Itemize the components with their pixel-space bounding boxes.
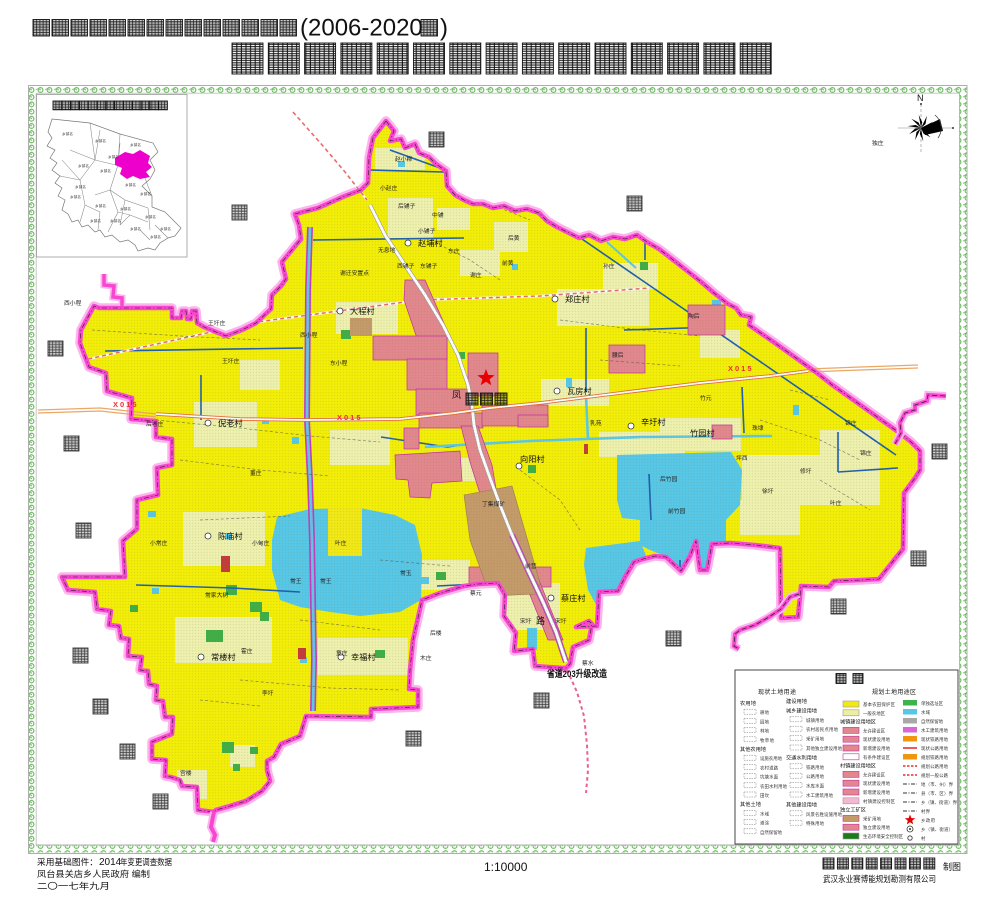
svg-text:乡镇名: 乡镇名	[150, 234, 161, 239]
svg-text:村: 村	[921, 835, 926, 841]
svg-text:后老庄: 后老庄	[146, 420, 164, 428]
svg-text:现状建设用地: 现状建设用地	[863, 780, 891, 787]
svg-text:丁集煤矿: 丁集煤矿	[482, 500, 505, 508]
svg-text:农村居民点用地: 农村居民点用地	[806, 726, 839, 733]
svg-text:乡镇名: 乡镇名	[62, 131, 73, 136]
svg-text:前营: 前营	[525, 562, 537, 570]
svg-text:后黄: 后黄	[508, 234, 520, 242]
svg-text:乡镇名: 乡镇名	[100, 168, 111, 173]
svg-text:生态环境安全控制区: 生态环境安全控制区	[863, 833, 904, 840]
svg-text:修圩: 修圩	[800, 467, 812, 475]
svg-text:武汉永业赛博能规划勘测有限公司: 武汉永业赛博能规划勘测有限公司	[823, 874, 936, 884]
svg-text:后楼: 后楼	[430, 629, 442, 637]
svg-text:林地: 林地	[760, 728, 770, 735]
svg-text:坪西: 坪西	[736, 454, 748, 462]
svg-text:瓦房村: 瓦房村	[567, 386, 592, 396]
svg-text:木庄: 木庄	[420, 654, 432, 662]
svg-text:其他农用地: 其他农用地	[740, 745, 766, 753]
svg-text:蔡元: 蔡元	[470, 589, 482, 597]
svg-text:霍庄: 霍庄	[241, 647, 253, 655]
svg-text:路: 路	[536, 615, 545, 626]
svg-text:王圩庄: 王圩庄	[222, 357, 240, 365]
svg-text:乡镇名: 乡镇名	[95, 138, 106, 143]
svg-text:小常庄: 小常庄	[150, 539, 168, 547]
svg-text:小铺子: 小铺子	[418, 227, 436, 235]
svg-text:村镇建设控制区: 村镇建设控制区	[863, 798, 896, 805]
svg-text:东铺子: 东铺子	[420, 262, 438, 270]
svg-text:公路用地: 公路用地	[806, 773, 825, 780]
svg-text:幸福村: 幸福村	[351, 652, 376, 662]
svg-text:X015: X015	[728, 364, 754, 373]
svg-text:谢迁安置点: 谢迁安置点	[340, 269, 369, 277]
svg-text:村界: 村界	[921, 808, 931, 815]
svg-text:乡镇名: 乡镇名	[95, 203, 106, 208]
svg-text:农村道路: 农村道路	[760, 764, 779, 771]
svg-text:叶庄: 叶庄	[335, 539, 347, 547]
svg-text:园地: 园地	[760, 718, 770, 725]
svg-text:东庄: 东庄	[448, 247, 460, 255]
svg-text:水库水面: 水库水面	[806, 783, 825, 790]
svg-text:规划一般公路: 规划一般公路	[921, 772, 949, 779]
svg-text:其他独立建设用地: 其他独立建设用地	[806, 745, 843, 752]
svg-text:乡镇名: 乡镇名	[145, 214, 156, 219]
svg-text:坑塘水面: 坑塘水面	[760, 774, 779, 781]
svg-text:其他建设用地: 其他建设用地	[786, 800, 817, 808]
svg-text:后铺子: 后铺子	[398, 202, 416, 210]
svg-text:县（市、区）界: 县（市、区）界	[921, 790, 954, 797]
svg-text:倪老村: 倪老村	[218, 418, 243, 428]
svg-text:大程村: 大程村	[350, 306, 375, 316]
svg-text:省道203升级改造: 省道203升级改造	[546, 668, 607, 680]
svg-text:小甸庄: 小甸庄	[252, 539, 270, 547]
svg-text:N: N	[917, 93, 924, 103]
svg-text:蔡庄村: 蔡庄村	[561, 593, 586, 603]
svg-text:田坎: 田坎	[760, 792, 770, 799]
svg-text:竹元: 竹元	[700, 394, 712, 402]
svg-text:年变更调查数据: 年变更调查数据	[120, 856, 172, 867]
svg-text:允许建设区: 允许建设区	[863, 727, 886, 734]
svg-text:李圩: 李圩	[262, 689, 274, 697]
svg-text:辛圩村: 辛圩村	[641, 417, 666, 427]
svg-text:乡政府: 乡政府	[921, 817, 936, 824]
svg-text:王圩庄: 王圩庄	[208, 319, 226, 327]
svg-text:现状公路用地: 现状公路用地	[921, 745, 949, 752]
svg-text:孙庄: 孙庄	[603, 262, 615, 270]
svg-text:城乡建设用地: 城乡建设用地	[786, 706, 817, 714]
svg-text:风景名胜设施用地: 风景名胜设施用地	[806, 811, 843, 818]
svg-text:采矿用地: 采矿用地	[806, 736, 825, 743]
svg-text:常楼村: 常楼村	[211, 652, 236, 662]
svg-text:乡镇名: 乡镇名	[160, 226, 171, 231]
svg-text:郑庄村: 郑庄村	[565, 294, 590, 304]
svg-text:X015: X015	[113, 400, 139, 409]
svg-text:独立工矿区: 独立工矿区	[840, 806, 866, 814]
svg-text:常家大树: 常家大树	[205, 591, 228, 599]
svg-text:制图: 制图	[943, 861, 961, 872]
svg-text:(2006-2020: (2006-2020	[300, 15, 423, 42]
svg-text:向阳村: 向阳村	[520, 454, 545, 464]
svg-text:一般农地区: 一般农地区	[863, 710, 886, 717]
svg-text:特殊用地: 特殊用地	[806, 820, 825, 827]
svg-text:基本农田保护区: 基本农田保护区	[863, 701, 896, 708]
svg-text:乡（镇、街道）: 乡（镇、街道）	[921, 826, 953, 833]
svg-text:西铺子: 西铺子	[397, 262, 415, 270]
svg-text:陶后: 陶后	[688, 312, 700, 320]
svg-text:腰后: 腰后	[612, 351, 624, 359]
svg-text:凤台县关店乡人民政府 编制: 凤台县关店乡人民政府 编制	[37, 868, 150, 879]
svg-text:独庄: 独庄	[872, 139, 884, 147]
svg-text:乡镇名: 乡镇名	[70, 194, 81, 199]
svg-text:珠埭: 珠埭	[752, 424, 764, 432]
svg-text:乡镇名: 乡镇名	[110, 218, 121, 223]
svg-text:前竹园: 前竹园	[668, 507, 686, 515]
svg-text:乡（镇、街道）界: 乡（镇、街道）界	[921, 799, 958, 806]
svg-text:规划土地用途区: 规划土地用途区	[872, 688, 916, 696]
svg-text:X015: X015	[337, 413, 363, 422]
svg-text:农田水利用地: 农田水利用地	[760, 783, 788, 790]
svg-text:乡镇名: 乡镇名	[125, 182, 136, 187]
svg-text:前黄: 前黄	[502, 259, 514, 267]
svg-text:乡镇名: 乡镇名	[75, 184, 86, 189]
svg-text:乳苑: 乳苑	[590, 419, 602, 427]
svg-text:现状建设用地: 现状建设用地	[863, 736, 891, 743]
svg-text:滩涂: 滩涂	[760, 820, 770, 827]
svg-text:宫楼: 宫楼	[180, 769, 192, 777]
svg-text:规划铁路用地: 规划铁路用地	[921, 754, 949, 761]
svg-text:童庄: 童庄	[336, 649, 348, 657]
svg-text:其他土地: 其他土地	[740, 800, 761, 808]
svg-text:水域: 水域	[760, 810, 770, 816]
svg-text:现状铁路用地: 现状铁路用地	[921, 736, 949, 743]
svg-text:西小程: 西小程	[300, 331, 318, 339]
svg-text:常王: 常王	[290, 577, 302, 585]
svg-text:徐圩: 徐圩	[762, 487, 774, 495]
svg-text:城镇用地: 城镇用地	[806, 717, 825, 724]
svg-text:乡镇名: 乡镇名	[130, 142, 141, 147]
svg-text:采矿用地: 采矿用地	[863, 815, 882, 822]
svg-text:无息地: 无息地	[378, 246, 396, 254]
svg-text:农用地: 农用地	[740, 699, 756, 707]
svg-text:宋圩: 宋圩	[520, 617, 532, 625]
svg-text:现状土地用途: 现状土地用途	[758, 688, 796, 696]
svg-text:谢庄: 谢庄	[470, 271, 482, 279]
svg-text:规划公路用地: 规划公路用地	[921, 763, 949, 770]
svg-text:乡镇名: 乡镇名	[120, 206, 131, 211]
svg-text:二〇一七年九月: 二〇一七年九月	[37, 880, 110, 891]
svg-text:村镇建设用地区: 村镇建设用地区	[840, 762, 876, 770]
svg-text:常王: 常王	[320, 577, 332, 585]
svg-text:中铺: 中铺	[432, 211, 444, 219]
svg-text:城镇建设用地区: 城镇建设用地区	[840, 718, 876, 726]
svg-text:赵埔村: 赵埔村	[418, 238, 443, 248]
svg-text:东小程: 东小程	[330, 359, 348, 367]
svg-text:常玉: 常玉	[400, 569, 412, 577]
svg-text:水工建筑用地: 水工建筑用地	[921, 727, 949, 734]
svg-text:锦庄: 锦庄	[845, 419, 857, 427]
svg-text:乡镇名: 乡镇名	[140, 191, 151, 196]
svg-text:单独选址区: 单独选址区	[921, 700, 944, 707]
svg-text:蔡水: 蔡水	[582, 659, 594, 667]
svg-text:西小程: 西小程	[64, 299, 82, 307]
svg-text:2014: 2014	[99, 857, 122, 868]
svg-text:新增建设用地: 新增建设用地	[863, 789, 891, 796]
svg-text:乡镇名: 乡镇名	[130, 226, 141, 231]
svg-text:陈庙村: 陈庙村	[218, 531, 243, 541]
svg-text:自然保留地: 自然保留地	[760, 829, 783, 836]
svg-text:允许建设区: 允许建设区	[863, 771, 886, 778]
svg-text:交通水利用地: 交通水利用地	[786, 753, 817, 761]
svg-text:凤: 凤	[452, 390, 461, 400]
svg-text:地（市、州）界: 地（市、州）界	[921, 781, 954, 788]
svg-text:小赵庄: 小赵庄	[380, 184, 398, 192]
svg-text:叶庄: 叶庄	[830, 499, 842, 507]
svg-text:1:10000: 1:10000	[484, 860, 528, 874]
svg-text:): )	[440, 15, 448, 42]
svg-text:乡镇名: 乡镇名	[108, 154, 119, 159]
svg-text:宋圩: 宋圩	[555, 617, 567, 625]
svg-text:赵小柳: 赵小柳	[395, 155, 413, 163]
svg-text:设施农用地: 设施农用地	[760, 755, 783, 762]
svg-text:耕地: 耕地	[760, 709, 770, 716]
svg-text:董庄: 董庄	[250, 469, 262, 477]
svg-text:后竹园: 后竹园	[660, 475, 678, 483]
svg-text:新增建设用地: 新增建设用地	[863, 745, 891, 752]
svg-text:竹园村: 竹园村	[690, 428, 715, 438]
svg-text:水工建筑用地: 水工建筑用地	[806, 792, 834, 799]
svg-text:建设用地: 建设用地	[786, 697, 807, 705]
svg-text:采用基础图件：: 采用基础图件：	[37, 856, 98, 867]
svg-text:水域: 水域	[921, 709, 931, 715]
svg-text:铁路用地: 铁路用地	[806, 764, 825, 771]
svg-text:锦庄: 锦庄	[860, 449, 872, 457]
svg-text:自然保留地: 自然保留地	[921, 718, 944, 725]
svg-text:独立建设用地: 独立建设用地	[863, 824, 891, 831]
svg-text:有条件建设区: 有条件建设区	[863, 754, 891, 761]
svg-text:牧草地: 牧草地	[760, 737, 775, 744]
svg-text:乡镇名: 乡镇名	[90, 218, 101, 223]
svg-text:乡镇名: 乡镇名	[78, 163, 89, 168]
